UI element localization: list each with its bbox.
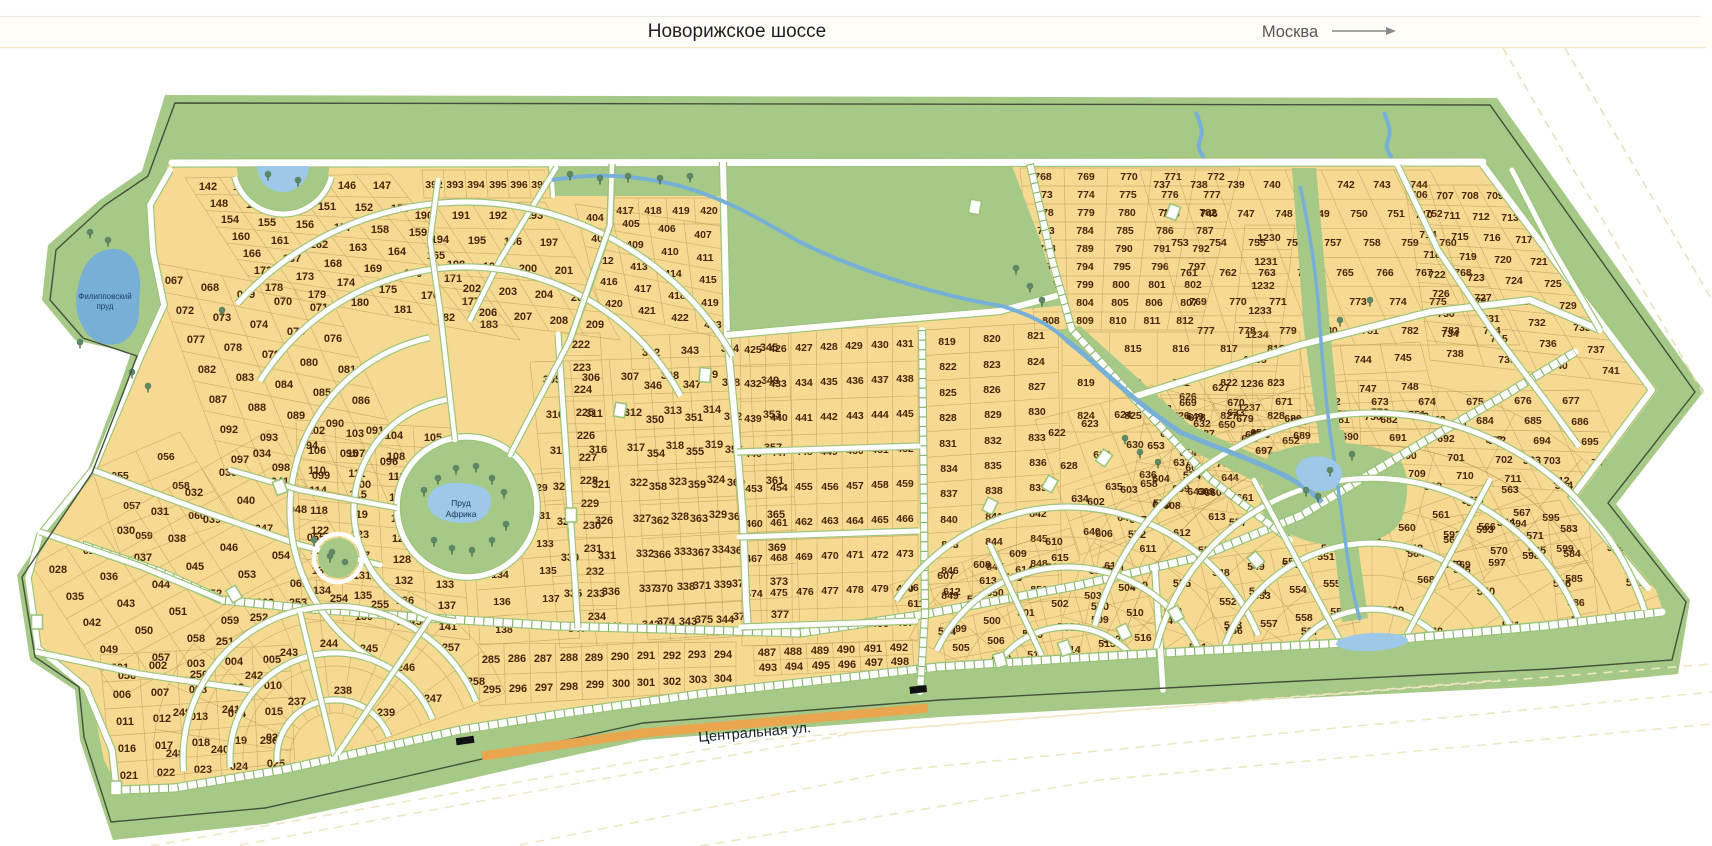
svg-text:056: 056 xyxy=(157,451,175,463)
svg-text:191: 191 xyxy=(452,210,470,222)
svg-text:011: 011 xyxy=(116,716,134,728)
svg-text:016: 016 xyxy=(118,743,136,755)
svg-text:790: 790 xyxy=(1115,243,1133,255)
svg-text:076: 076 xyxy=(324,333,342,345)
svg-text:840: 840 xyxy=(940,514,958,526)
svg-text:311: 311 xyxy=(585,408,603,420)
svg-text:757: 757 xyxy=(1324,237,1342,249)
svg-text:563: 563 xyxy=(1501,484,1519,496)
svg-text:789: 789 xyxy=(1076,243,1094,255)
svg-text:293: 293 xyxy=(688,649,706,661)
svg-text:021: 021 xyxy=(120,770,138,782)
svg-text:151: 151 xyxy=(318,201,336,213)
svg-text:477: 477 xyxy=(821,585,839,597)
svg-text:695: 695 xyxy=(1581,436,1599,448)
svg-text:476: 476 xyxy=(796,586,814,598)
svg-text:040: 040 xyxy=(237,495,255,507)
svg-text:462: 462 xyxy=(795,516,813,528)
svg-text:358: 358 xyxy=(649,481,667,493)
svg-text:410: 410 xyxy=(661,246,679,258)
svg-text:443: 443 xyxy=(846,410,864,422)
svg-text:612: 612 xyxy=(943,586,961,598)
svg-text:831: 831 xyxy=(939,438,957,450)
svg-text:054: 054 xyxy=(272,550,291,562)
svg-text:720: 720 xyxy=(1494,254,1512,266)
svg-text:059: 059 xyxy=(221,615,239,627)
svg-text:804: 804 xyxy=(1076,297,1094,309)
svg-text:416: 416 xyxy=(600,276,618,288)
svg-text:326: 326 xyxy=(595,515,613,527)
svg-text:490: 490 xyxy=(837,644,855,656)
svg-text:Пруд: Пруд xyxy=(451,498,471,508)
svg-text:086: 086 xyxy=(352,395,370,407)
svg-text:457: 457 xyxy=(846,480,864,492)
svg-text:053: 053 xyxy=(238,569,256,581)
svg-text:691: 691 xyxy=(1389,432,1407,444)
svg-text:745: 745 xyxy=(1394,352,1412,364)
svg-text:351: 351 xyxy=(685,412,703,424)
svg-text:609: 609 xyxy=(1197,486,1215,498)
svg-text:426: 426 xyxy=(769,343,787,355)
svg-text:083: 083 xyxy=(236,372,254,384)
svg-text:747: 747 xyxy=(1359,383,1377,395)
svg-text:487: 487 xyxy=(758,647,776,659)
svg-text:495: 495 xyxy=(812,660,830,672)
svg-text:371: 371 xyxy=(693,580,711,592)
svg-text:394: 394 xyxy=(467,179,485,191)
svg-text:809: 809 xyxy=(1076,315,1094,327)
svg-text:669: 669 xyxy=(1179,397,1197,409)
svg-text:006: 006 xyxy=(113,689,131,701)
svg-text:606: 606 xyxy=(1095,528,1113,540)
svg-text:721: 721 xyxy=(1530,256,1548,268)
svg-text:765: 765 xyxy=(1336,267,1354,279)
svg-text:290: 290 xyxy=(611,651,629,663)
svg-text:469: 469 xyxy=(795,551,813,563)
svg-text:068: 068 xyxy=(201,282,219,294)
svg-text:005: 005 xyxy=(263,654,281,666)
svg-text:759: 759 xyxy=(1401,237,1419,249)
svg-text:738: 738 xyxy=(1190,179,1208,191)
svg-text:836: 836 xyxy=(1029,457,1047,469)
svg-text:132: 132 xyxy=(395,575,413,587)
svg-text:057: 057 xyxy=(123,500,141,512)
svg-text:707: 707 xyxy=(1436,190,1454,202)
svg-text:717: 717 xyxy=(1515,234,1533,246)
svg-text:232: 232 xyxy=(586,566,604,578)
svg-text:609: 609 xyxy=(1009,548,1027,560)
svg-text:152: 152 xyxy=(355,202,373,214)
svg-text:142: 142 xyxy=(199,181,217,193)
svg-text:837: 837 xyxy=(940,488,958,500)
svg-text:336: 336 xyxy=(602,586,620,598)
svg-text:758: 758 xyxy=(1363,237,1381,249)
svg-text:746: 746 xyxy=(1200,208,1218,220)
svg-text:197: 197 xyxy=(540,237,558,249)
svg-text:676: 676 xyxy=(1514,395,1532,407)
svg-text:771: 771 xyxy=(1269,296,1287,308)
svg-text:224: 224 xyxy=(574,384,593,396)
svg-text:739: 739 xyxy=(1227,179,1245,191)
svg-text:802: 802 xyxy=(1184,279,1202,291)
svg-text:466: 466 xyxy=(896,513,914,525)
svg-text:428: 428 xyxy=(820,341,838,353)
svg-text:736: 736 xyxy=(1539,338,1557,350)
svg-text:671: 671 xyxy=(1275,396,1293,408)
svg-text:463: 463 xyxy=(821,515,839,527)
svg-text:775: 775 xyxy=(1119,189,1137,201)
svg-text:491: 491 xyxy=(864,643,882,655)
svg-text:201: 201 xyxy=(555,265,573,277)
svg-text:821: 821 xyxy=(1027,330,1045,342)
svg-text:748: 748 xyxy=(1275,208,1293,220)
svg-text:453: 453 xyxy=(745,483,763,495)
svg-text:419: 419 xyxy=(701,297,719,309)
svg-text:343: 343 xyxy=(681,345,699,357)
svg-text:585: 585 xyxy=(1565,573,1583,585)
svg-text:750: 750 xyxy=(1350,208,1368,220)
svg-text:427: 427 xyxy=(795,342,813,354)
svg-text:168: 168 xyxy=(324,258,342,270)
svg-text:566: 566 xyxy=(1478,521,1496,533)
svg-text:038: 038 xyxy=(168,533,186,545)
svg-text:404: 404 xyxy=(586,212,604,224)
svg-text:355: 355 xyxy=(686,446,704,458)
svg-text:074: 074 xyxy=(250,319,269,331)
svg-text:472: 472 xyxy=(871,549,889,561)
svg-text:421: 421 xyxy=(638,305,656,317)
svg-text:350: 350 xyxy=(646,414,664,426)
svg-text:711: 711 xyxy=(1444,210,1461,222)
svg-text:678: 678 xyxy=(1188,412,1206,424)
svg-text:050: 050 xyxy=(135,625,153,637)
svg-text:747: 747 xyxy=(1237,208,1255,220)
svg-text:782: 782 xyxy=(1401,325,1419,337)
svg-text:820: 820 xyxy=(983,333,1001,345)
svg-text:454: 454 xyxy=(770,482,788,494)
svg-text:738: 738 xyxy=(1446,348,1464,360)
svg-text:762: 762 xyxy=(1219,267,1237,279)
svg-text:583: 583 xyxy=(1560,523,1578,535)
svg-text:318: 318 xyxy=(666,440,684,452)
svg-text:468: 468 xyxy=(770,552,788,564)
svg-text:769: 769 xyxy=(1189,296,1207,308)
svg-text:701: 701 xyxy=(1447,452,1465,464)
svg-text:751: 751 xyxy=(1387,208,1405,220)
svg-text:440: 440 xyxy=(770,412,788,424)
svg-text:828: 828 xyxy=(939,412,957,424)
svg-text:286: 286 xyxy=(508,653,526,665)
svg-text:826: 826 xyxy=(983,384,1001,396)
svg-text:489: 489 xyxy=(811,645,829,657)
svg-text:470: 470 xyxy=(821,550,839,562)
svg-text:471: 471 xyxy=(846,549,864,561)
svg-text:339: 339 xyxy=(714,579,732,591)
svg-text:754: 754 xyxy=(1209,237,1227,249)
svg-text:827: 827 xyxy=(1028,381,1046,393)
svg-text:806: 806 xyxy=(1145,297,1163,309)
svg-text:779: 779 xyxy=(1077,207,1095,219)
svg-text:420: 420 xyxy=(700,205,718,217)
svg-text:505: 505 xyxy=(952,642,970,654)
svg-text:769: 769 xyxy=(1077,171,1095,183)
svg-text:613: 613 xyxy=(1208,511,1226,523)
svg-text:787: 787 xyxy=(1196,225,1214,237)
svg-text:Африка: Африка xyxy=(446,509,477,519)
svg-text:430: 430 xyxy=(871,339,889,351)
svg-text:088: 088 xyxy=(248,402,266,414)
svg-text:287: 287 xyxy=(534,653,552,665)
svg-text:794: 794 xyxy=(1076,261,1094,273)
svg-text:774: 774 xyxy=(1389,296,1407,308)
svg-text:506: 506 xyxy=(987,635,1005,647)
svg-text:195: 195 xyxy=(468,235,486,247)
svg-text:817: 817 xyxy=(1220,343,1238,355)
svg-text:174: 174 xyxy=(337,277,356,289)
svg-text:464: 464 xyxy=(846,515,864,527)
svg-text:703: 703 xyxy=(1543,455,1561,467)
svg-text:811: 811 xyxy=(1144,315,1161,327)
svg-text:694: 694 xyxy=(1533,435,1551,447)
svg-text:774: 774 xyxy=(1077,189,1095,201)
svg-text:328: 328 xyxy=(671,511,689,523)
svg-text:761: 761 xyxy=(1180,267,1198,279)
svg-text:715: 715 xyxy=(1451,231,1469,243)
svg-text:183: 183 xyxy=(480,319,498,331)
svg-text:366: 366 xyxy=(653,549,671,561)
svg-text:560: 560 xyxy=(1398,522,1416,534)
svg-text:604: 604 xyxy=(1152,473,1170,485)
svg-text:Москва: Москва xyxy=(1262,23,1319,41)
svg-text:164: 164 xyxy=(388,246,407,258)
svg-text:166: 166 xyxy=(243,248,261,260)
svg-text:436: 436 xyxy=(846,375,864,387)
svg-text:031: 031 xyxy=(151,506,169,518)
svg-text:396: 396 xyxy=(510,179,528,191)
svg-text:822: 822 xyxy=(939,361,957,373)
svg-text:206: 206 xyxy=(479,307,497,319)
svg-text:439: 439 xyxy=(744,413,762,425)
svg-text:155: 155 xyxy=(258,217,276,229)
svg-text:146: 146 xyxy=(338,180,356,192)
svg-text:608: 608 xyxy=(973,559,991,571)
svg-text:302: 302 xyxy=(663,676,681,688)
svg-text:148: 148 xyxy=(210,198,228,210)
svg-text:028: 028 xyxy=(49,564,67,576)
svg-text:303: 303 xyxy=(689,674,707,686)
svg-text:036: 036 xyxy=(100,571,118,583)
svg-text:432: 432 xyxy=(744,378,762,390)
svg-text:567: 567 xyxy=(1513,507,1531,519)
svg-text:133: 133 xyxy=(536,538,554,550)
svg-text:622: 622 xyxy=(1048,427,1066,439)
svg-text:417: 417 xyxy=(616,205,634,217)
svg-text:741: 741 xyxy=(1602,365,1620,377)
svg-text:070: 070 xyxy=(274,296,292,308)
svg-text:755: 755 xyxy=(1248,237,1266,249)
svg-text:773: 773 xyxy=(1349,296,1367,308)
svg-text:823: 823 xyxy=(983,359,1001,371)
svg-text:459: 459 xyxy=(896,478,914,490)
svg-text:433: 433 xyxy=(769,378,787,390)
svg-text:737: 737 xyxy=(1587,344,1605,356)
svg-text:763: 763 xyxy=(1258,267,1276,279)
svg-text:035: 035 xyxy=(66,591,84,603)
svg-text:722: 722 xyxy=(1428,269,1446,281)
svg-text:677: 677 xyxy=(1562,395,1580,407)
svg-text:778: 778 xyxy=(1238,325,1256,337)
svg-text:136: 136 xyxy=(493,596,511,608)
svg-text:1232: 1232 xyxy=(1251,280,1275,292)
svg-text:298: 298 xyxy=(560,681,578,693)
svg-text:799: 799 xyxy=(1076,279,1094,291)
svg-text:415: 415 xyxy=(699,274,717,286)
svg-text:719: 719 xyxy=(1459,251,1477,263)
svg-text:819: 819 xyxy=(1077,377,1095,389)
svg-text:770: 770 xyxy=(1120,171,1138,183)
svg-text:650: 650 xyxy=(1218,419,1236,431)
svg-text:488: 488 xyxy=(784,646,802,658)
svg-text:800: 800 xyxy=(1112,279,1130,291)
svg-text:128: 128 xyxy=(393,554,411,566)
svg-text:475: 475 xyxy=(770,587,788,599)
svg-text:331: 331 xyxy=(598,550,616,562)
svg-text:300: 300 xyxy=(612,678,630,690)
svg-text:067: 067 xyxy=(165,275,183,287)
svg-text:319: 319 xyxy=(705,439,723,451)
svg-text:478: 478 xyxy=(846,584,864,596)
svg-text:307: 307 xyxy=(621,371,639,383)
svg-text:724: 724 xyxy=(1505,275,1523,287)
svg-text:208: 208 xyxy=(550,315,568,327)
svg-text:425: 425 xyxy=(744,344,762,356)
svg-text:442: 442 xyxy=(820,411,838,423)
svg-text:444: 444 xyxy=(871,409,889,421)
svg-text:419: 419 xyxy=(672,205,690,217)
svg-text:825: 825 xyxy=(939,387,957,399)
svg-text:015: 015 xyxy=(265,706,283,718)
svg-text:411: 411 xyxy=(697,252,714,264)
svg-text:554: 554 xyxy=(1289,584,1307,596)
svg-text:072: 072 xyxy=(176,305,194,317)
svg-text:291: 291 xyxy=(637,650,655,662)
svg-text:723: 723 xyxy=(1467,272,1485,284)
svg-text:824: 824 xyxy=(1077,410,1095,422)
svg-text:429: 429 xyxy=(845,340,863,352)
svg-text:158: 158 xyxy=(371,224,389,236)
svg-text:084: 084 xyxy=(275,379,294,391)
svg-text:455: 455 xyxy=(795,481,813,493)
svg-text:801: 801 xyxy=(1148,279,1166,291)
svg-text:434: 434 xyxy=(795,377,813,389)
svg-text:207: 207 xyxy=(514,311,532,323)
svg-text:058: 058 xyxy=(187,633,205,645)
svg-text:461: 461 xyxy=(770,517,788,529)
svg-text:288: 288 xyxy=(560,652,578,664)
svg-text:294: 294 xyxy=(714,649,733,661)
svg-text:766: 766 xyxy=(1376,267,1394,279)
svg-text:686: 686 xyxy=(1571,416,1589,428)
svg-text:670: 670 xyxy=(1227,397,1245,409)
svg-text:306: 306 xyxy=(582,372,600,384)
svg-text:332: 332 xyxy=(636,548,654,560)
svg-text:673: 673 xyxy=(1371,396,1389,408)
svg-text:784: 784 xyxy=(1076,225,1094,237)
svg-text:740: 740 xyxy=(1263,179,1281,191)
svg-text:829: 829 xyxy=(984,409,1002,421)
svg-text:098: 098 xyxy=(272,462,290,474)
svg-text:712: 712 xyxy=(1472,211,1490,223)
svg-text:370: 370 xyxy=(655,583,673,595)
svg-text:346: 346 xyxy=(644,380,662,392)
svg-text:051: 051 xyxy=(169,606,187,618)
svg-text:407: 407 xyxy=(694,229,712,241)
svg-text:313: 313 xyxy=(664,405,682,417)
svg-text:299: 299 xyxy=(586,679,604,691)
svg-text:046: 046 xyxy=(220,542,238,554)
svg-text:202: 202 xyxy=(463,283,481,295)
svg-text:080: 080 xyxy=(300,357,318,369)
svg-text:238: 238 xyxy=(334,685,352,697)
svg-text:077: 077 xyxy=(187,334,205,346)
svg-text:435: 435 xyxy=(820,376,838,388)
svg-text:838: 838 xyxy=(985,485,1003,497)
svg-text:049: 049 xyxy=(100,644,118,656)
svg-text:510: 510 xyxy=(1126,607,1144,619)
svg-text:285: 285 xyxy=(482,654,500,666)
svg-text:289: 289 xyxy=(585,652,603,664)
svg-text:603: 603 xyxy=(1120,484,1138,496)
svg-text:209: 209 xyxy=(586,319,604,331)
svg-text:653: 653 xyxy=(1147,440,1165,452)
svg-text:316: 316 xyxy=(589,444,607,456)
svg-text:180: 180 xyxy=(351,297,369,309)
svg-text:833: 833 xyxy=(1028,432,1046,444)
svg-text:812: 812 xyxy=(1176,315,1194,327)
svg-text:557: 557 xyxy=(1260,618,1278,630)
svg-text:816: 816 xyxy=(1172,343,1190,355)
svg-text:043: 043 xyxy=(117,598,135,610)
svg-text:107: 107 xyxy=(347,448,365,460)
svg-text:181: 181 xyxy=(394,304,412,316)
svg-text:785: 785 xyxy=(1116,225,1134,237)
svg-text:192: 192 xyxy=(489,210,507,222)
svg-text:106: 106 xyxy=(308,445,326,457)
svg-text:823: 823 xyxy=(1267,377,1285,389)
svg-text:022: 022 xyxy=(157,767,175,779)
svg-text:497: 497 xyxy=(865,657,883,669)
svg-text:018: 018 xyxy=(192,737,210,749)
svg-text:734: 734 xyxy=(1441,328,1459,340)
svg-text:359: 359 xyxy=(688,479,706,491)
svg-text:770: 770 xyxy=(1229,296,1247,308)
svg-text:163: 163 xyxy=(349,242,367,254)
svg-text:496: 496 xyxy=(838,659,856,671)
svg-text:460: 460 xyxy=(745,518,763,530)
svg-text:334: 334 xyxy=(712,544,731,556)
svg-text:628: 628 xyxy=(1060,460,1078,472)
svg-text:395: 395 xyxy=(489,179,507,191)
svg-text:437: 437 xyxy=(871,374,889,386)
svg-text:082: 082 xyxy=(198,364,216,376)
svg-text:296: 296 xyxy=(509,683,527,695)
svg-text:685: 685 xyxy=(1524,415,1542,427)
svg-text:445: 445 xyxy=(896,408,914,420)
svg-text:030: 030 xyxy=(117,525,135,537)
svg-text:393: 393 xyxy=(446,179,464,191)
svg-text:822: 822 xyxy=(1220,377,1238,389)
svg-text:078: 078 xyxy=(224,342,242,354)
